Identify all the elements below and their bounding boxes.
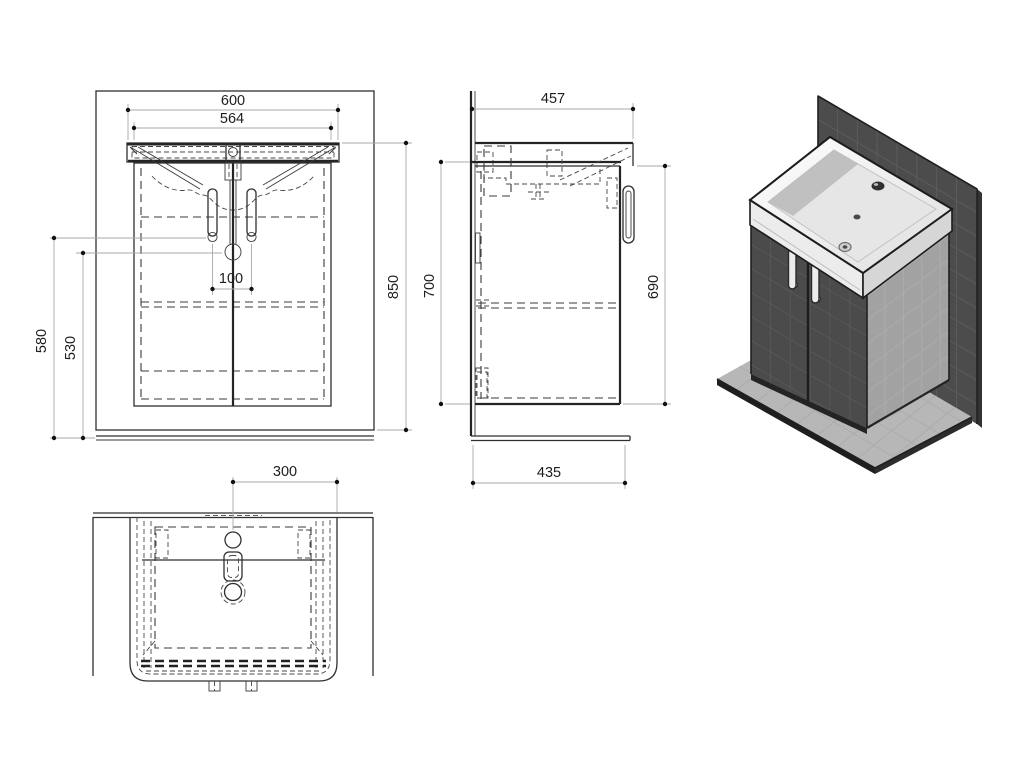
dim-front-height-total: 850 — [386, 275, 402, 299]
plan-washbasin — [130, 517, 337, 691]
plan-view: 300 — [93, 464, 373, 691]
dim-side-height-back: 700 — [422, 274, 438, 298]
technical-drawing: 600 564 850 580 530 100 — [0, 0, 1024, 768]
dim-front-width-basin: 564 — [220, 111, 244, 127]
side-washbasin-section — [471, 143, 633, 199]
dim-side-depth-base: 435 — [537, 465, 561, 481]
side-view: 457 700 690 435 — [422, 91, 671, 489]
plan-overflow — [224, 552, 242, 581]
plan-drain — [225, 584, 242, 601]
side-handle — [623, 186, 634, 243]
side-dimensions: 457 700 690 435 — [422, 91, 671, 489]
dim-side-height-front: 690 — [646, 275, 662, 299]
dim-front-width-top: 600 — [221, 93, 245, 109]
dim-front-height-outer-left: 580 — [34, 329, 50, 353]
iso-faucet-hole — [872, 182, 885, 191]
iso-view — [717, 96, 982, 474]
drawing-page: 600 564 850 580 530 100 — [0, 0, 1024, 768]
dim-front-height-inner-left: 530 — [63, 336, 79, 360]
plan-wall — [93, 513, 373, 676]
plan-faucet-hole — [225, 532, 241, 548]
plan-dimensions: 300 — [231, 464, 339, 530]
dim-front-handle-spacing: 100 — [219, 271, 243, 287]
dim-plan-center-to-edge: 300 — [273, 464, 297, 480]
side-cabinet-section — [475, 166, 634, 404]
dim-side-depth-top: 457 — [541, 91, 565, 107]
front-view: 600 564 850 580 530 100 — [34, 91, 412, 440]
iso-overflow-hole — [854, 215, 861, 220]
front-wall-panel — [96, 91, 374, 430]
